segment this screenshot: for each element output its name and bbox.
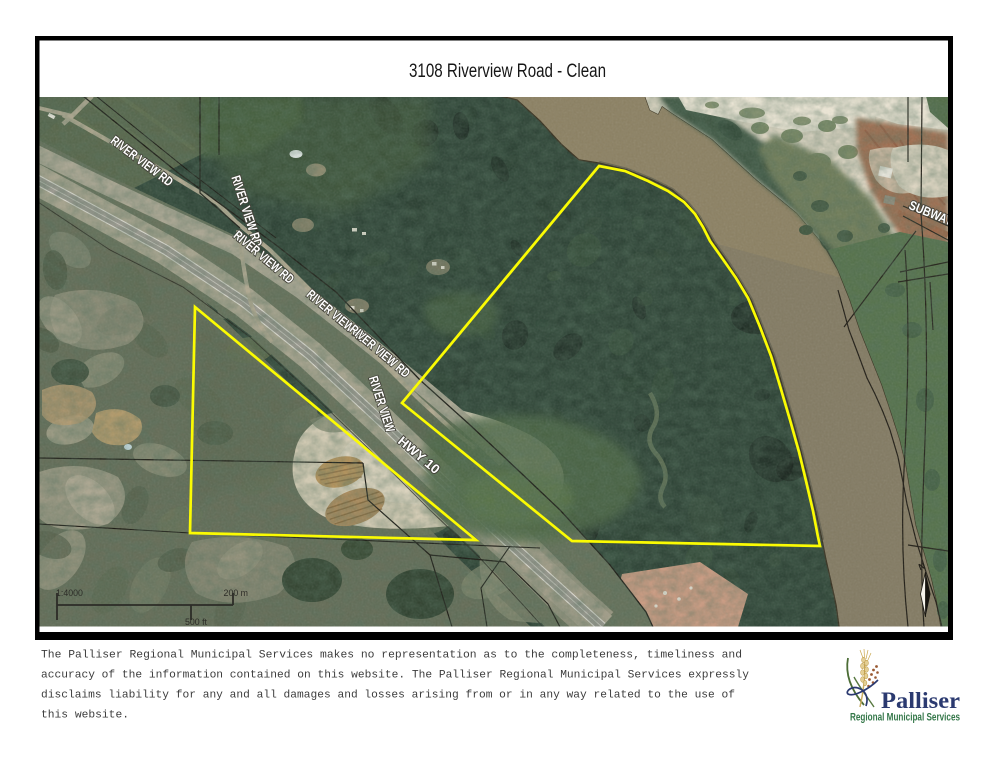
svg-text:Regional Municipal Services: Regional Municipal Services [850,712,960,724]
svg-text:Palliser: Palliser [881,688,960,713]
svg-text:The Palliser Regional Municipa: The Palliser Regional Municipal Services… [41,650,742,662]
svg-text:3108 Riverview Road - Clean: 3108 Riverview Road - Clean [409,61,606,82]
svg-text:disclaims liability for any an: disclaims liability for any and all dama… [41,690,735,702]
svg-text:this website.: this website. [41,710,129,722]
svg-text:500 ft: 500 ft [185,617,208,627]
svg-text:200 m: 200 m [224,588,248,598]
svg-text:1:4000: 1:4000 [56,588,83,598]
svg-text:accuracy of the information co: accuracy of the information contained on… [41,670,749,682]
